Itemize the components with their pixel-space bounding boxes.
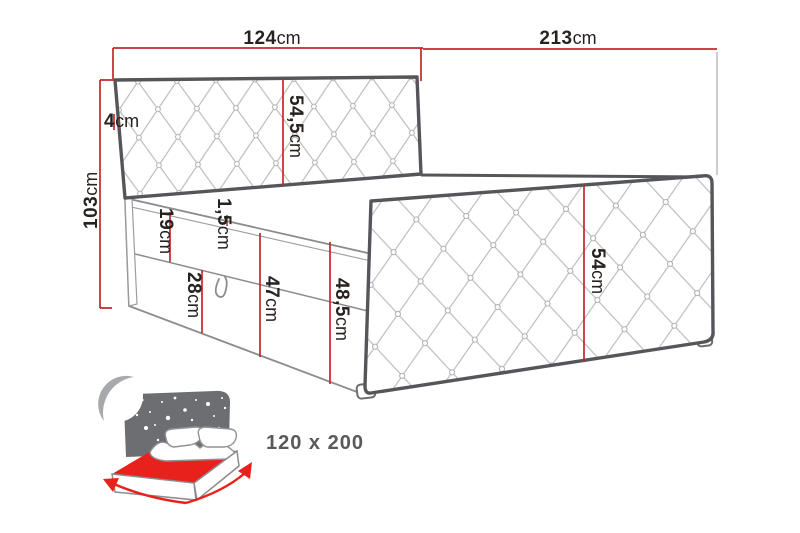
dim-label-48-5: 48,5cm [331, 278, 352, 341]
dim-label-1-5: 1,5cm [213, 198, 234, 250]
bed-drawing [100, 52, 725, 405]
dim-label-19: 19cm [155, 208, 176, 254]
dim-label-28: 28cm [183, 272, 204, 318]
far-rail-edge [421, 175, 708, 177]
bed-dimension-diagram: 124cm 213cm 4cm 103cm 54,5cm 1,5cm 19cm … [0, 0, 800, 533]
bed-size-icon [91, 370, 252, 503]
bed-size-label: 120 x 200 [266, 432, 364, 454]
footboard [355, 160, 725, 405]
dim-label-54: 54cm [587, 248, 608, 294]
icon-pillow-right [198, 427, 236, 447]
dim-label-54-5: 54,5cm [285, 95, 306, 158]
dim-label-4: 4cm [104, 111, 139, 132]
dim-label-47: 47cm [261, 276, 282, 322]
dim-label-213: 213cm [539, 28, 596, 49]
dim-label-124: 124cm [243, 28, 300, 49]
dim-label-103: 103cm [81, 172, 102, 229]
diagram-canvas: 124cm 213cm 4cm 103cm 54,5cm 1,5cm 19cm … [0, 0, 800, 533]
